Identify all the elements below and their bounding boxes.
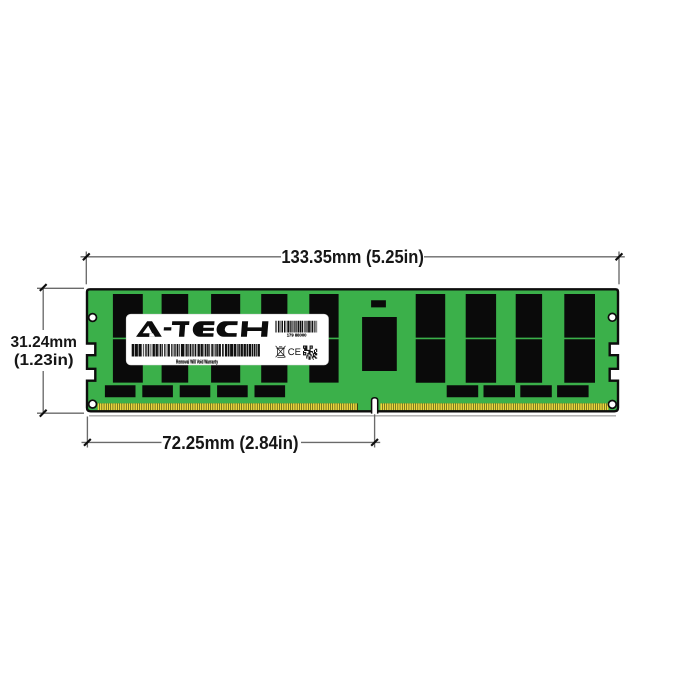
svg-text:133.35mm (5.25in): 133.35mm (5.25in)	[281, 246, 424, 267]
svg-text:(1.23in): (1.23in)	[14, 352, 74, 369]
svg-text:31.24mm: 31.24mm	[11, 334, 77, 351]
svg-text:179 88000: 179 88000	[287, 333, 307, 338]
svg-text:72.25mm (2.84in): 72.25mm (2.84in)	[162, 432, 298, 453]
svg-text:Removal Will Void Warranty: Removal Will Void Warranty	[176, 358, 218, 365]
svg-text:CE: CE	[288, 347, 301, 358]
